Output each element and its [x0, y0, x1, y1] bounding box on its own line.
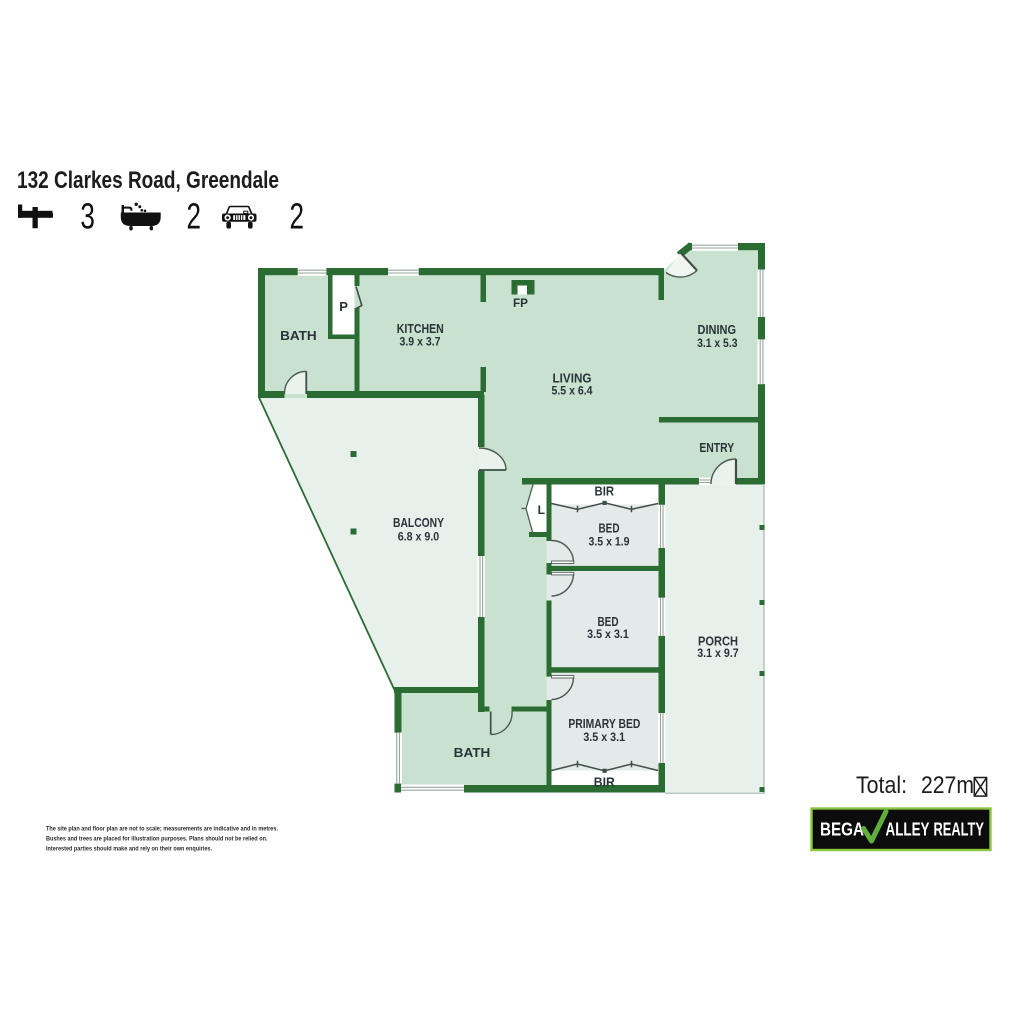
- svg-text:132 Clarkes Road, Greendale: 132 Clarkes Road, Greendale: [17, 167, 279, 194]
- svg-text:ENTRY: ENTRY: [699, 440, 734, 455]
- svg-text:BATH: BATH: [280, 328, 317, 343]
- svg-text:3.1 x 9.7: 3.1 x 9.7: [697, 646, 739, 660]
- svg-text:BED: BED: [599, 521, 620, 536]
- svg-text:227m: 227m: [921, 772, 974, 799]
- svg-text:BALCONY: BALCONY: [393, 515, 444, 530]
- svg-text:BIR: BIR: [594, 775, 616, 790]
- svg-text:ALLEY: ALLEY: [886, 819, 930, 840]
- svg-text:3.9 x 3.7: 3.9 x 3.7: [400, 335, 441, 349]
- svg-text:L: L: [538, 503, 545, 517]
- svg-text:3.5 x 3.1: 3.5 x 3.1: [587, 627, 629, 641]
- svg-text:6.8 x 9.0: 6.8 x 9.0: [398, 529, 440, 543]
- svg-text:Total:: Total:: [856, 772, 907, 799]
- svg-text:BATH: BATH: [454, 745, 491, 760]
- svg-text:The site plan and floor plan a: The site plan and floor plan are not to …: [46, 826, 278, 833]
- svg-text:3: 3: [80, 196, 95, 237]
- svg-text:Bushes and trees are placed fo: Bushes and trees are placed for illustra…: [46, 836, 268, 843]
- svg-text:3.5 x 3.1: 3.5 x 3.1: [583, 730, 625, 744]
- svg-text:BIR: BIR: [595, 484, 615, 499]
- svg-text:PRIMARY BED: PRIMARY BED: [568, 716, 640, 731]
- svg-text:2: 2: [187, 196, 202, 237]
- svg-text:DINING: DINING: [698, 322, 737, 337]
- svg-text:5.5 x 6.4: 5.5 x 6.4: [552, 383, 593, 397]
- svg-text:FP: FP: [513, 296, 528, 310]
- svg-text:REALTY: REALTY: [934, 819, 985, 840]
- svg-text:BEGA: BEGA: [820, 819, 864, 840]
- svg-text:P: P: [339, 299, 348, 314]
- svg-text:3.1 x 5.3: 3.1 x 5.3: [697, 336, 738, 350]
- svg-text:3.5 x 1.9: 3.5 x 1.9: [589, 535, 630, 549]
- svg-text:Interested parties should make: Interested parties should make and rely …: [46, 846, 212, 853]
- svg-text:2: 2: [289, 196, 304, 237]
